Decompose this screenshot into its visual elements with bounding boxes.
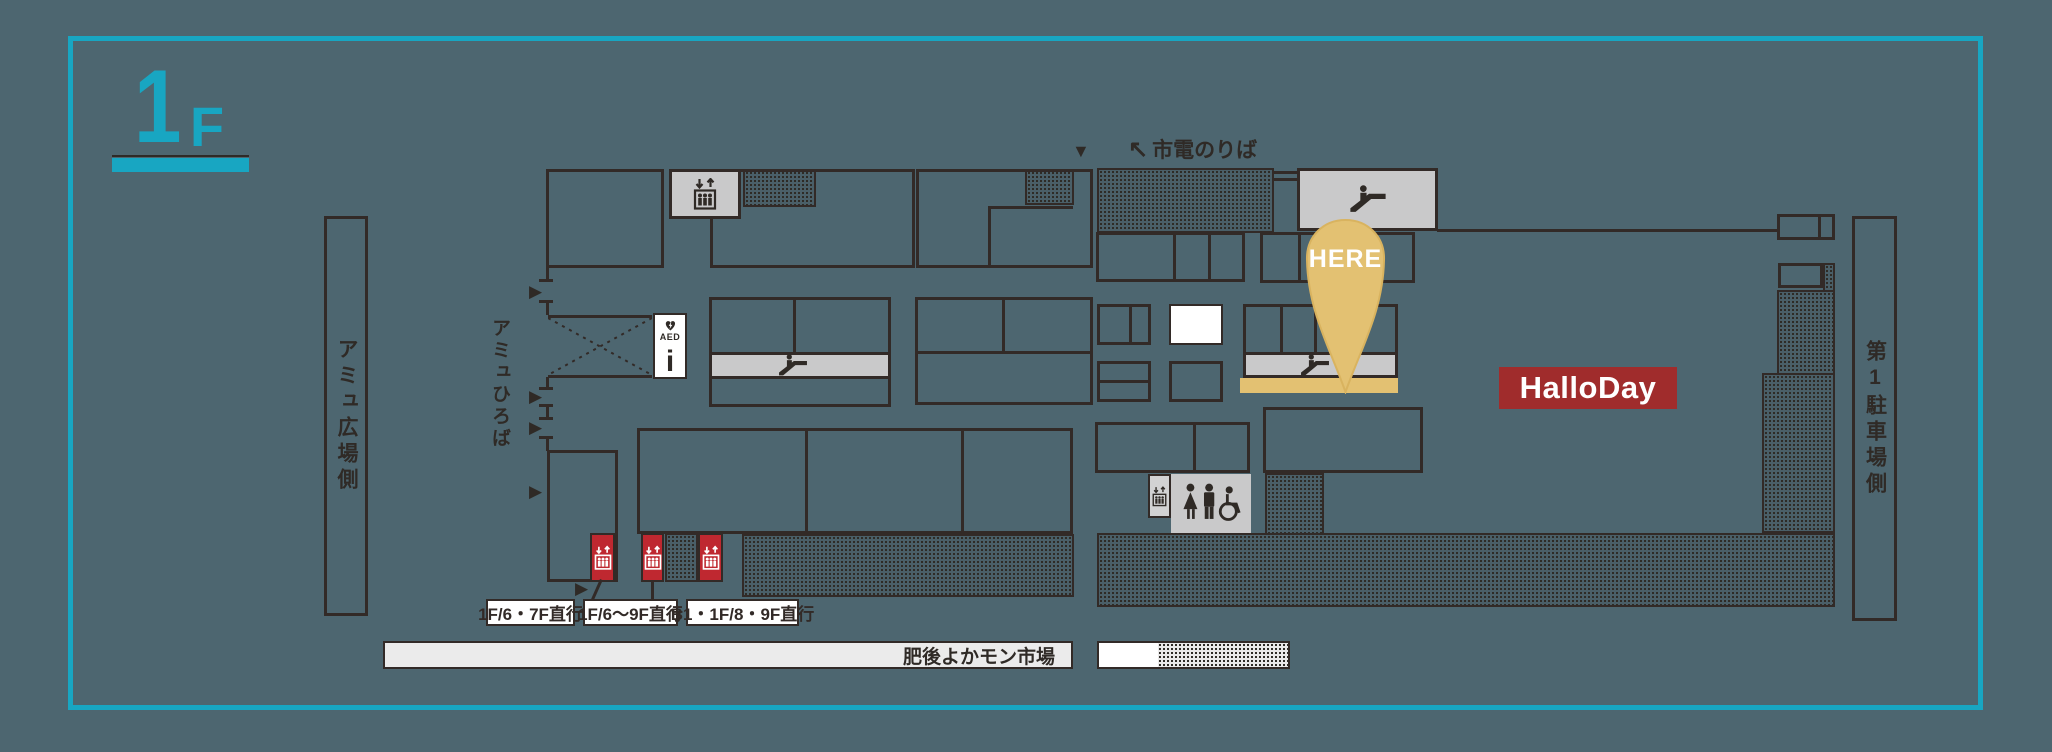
room-divider — [1818, 214, 1821, 240]
room-divider — [1193, 422, 1196, 473]
parking-side-label: 第1駐車場側 — [1860, 340, 1890, 498]
x-room — [548, 315, 652, 378]
map-room — [1096, 232, 1245, 282]
room-divider — [988, 206, 991, 268]
elevator-hall-top — [669, 169, 741, 219]
map-room-white — [1169, 304, 1223, 345]
room-divider — [988, 206, 1073, 209]
escalator-icon — [778, 354, 808, 377]
direct-elevator — [641, 533, 664, 582]
bottom-right-box — [1097, 641, 1290, 669]
hatched-zone — [1823, 263, 1835, 292]
hatched-zone — [1025, 169, 1074, 205]
elevator-hall-small — [1148, 474, 1171, 518]
floor-title: 1 F — [134, 56, 224, 150]
connector-line — [1273, 171, 1297, 174]
map-wall — [1437, 229, 1778, 232]
entrance-arrow-icon: ▶ — [529, 283, 542, 300]
map-room — [1097, 304, 1151, 345]
elevator-note: B1・1F/8・9F直行 — [686, 599, 799, 626]
room-divider — [1097, 380, 1151, 383]
hatched-zone — [665, 533, 698, 582]
room-divider — [1208, 232, 1211, 282]
hatched-zone — [1777, 290, 1835, 375]
map-room — [1778, 263, 1823, 288]
down-arrow-icon: ▼ — [1072, 142, 1090, 160]
elevator-icon — [594, 545, 612, 571]
hatched-zone — [1762, 373, 1835, 533]
map-wall — [546, 301, 549, 315]
room-divider — [1298, 232, 1301, 283]
parking-side-zone: 第1駐車場側 — [1852, 216, 1897, 621]
hatched-zone — [1158, 643, 1288, 667]
tram-arrow-icon: ↖ — [1128, 135, 1148, 164]
plaza-label: アミュひろば — [486, 318, 513, 455]
tram-stop-label: ↖ 市電のりば — [1128, 134, 1257, 164]
floor-number: 1 — [134, 65, 181, 150]
elevator-icon — [702, 545, 720, 571]
plaza-side-label: アミュ広場側 — [331, 338, 361, 494]
map-room — [1169, 361, 1223, 402]
map-room — [1095, 422, 1250, 473]
here-pin-icon — [1303, 216, 1388, 394]
info-icon: i — [666, 347, 674, 377]
direct-elevator — [698, 533, 723, 582]
room-divider — [915, 351, 1093, 354]
room-divider — [805, 428, 808, 534]
hatched-zone — [1097, 533, 1835, 607]
hatched-zone — [743, 169, 816, 207]
elevator-icon — [1152, 486, 1167, 507]
map-room — [1777, 214, 1835, 240]
entrance-arrow-icon: ▶ — [529, 388, 542, 405]
elevator-note: 1F/6〜9F直行 — [583, 599, 678, 626]
map-wall — [546, 438, 549, 451]
room-divider — [961, 428, 964, 534]
plaza-side-zone: アミュ広場側 — [324, 216, 368, 616]
connector-line — [1273, 178, 1297, 181]
entrance-arrow-icon: ▶ — [529, 483, 542, 500]
store-label-halloday: HalloDay — [1499, 367, 1677, 409]
floor-suffix: F — [190, 105, 224, 150]
leader-line — [651, 582, 654, 600]
map-room — [546, 169, 664, 268]
map-room — [637, 428, 1073, 534]
elevator-icon — [693, 178, 717, 210]
here-label: HERE — [1303, 245, 1388, 274]
aed-icon — [659, 320, 682, 331]
hatched-zone — [1097, 168, 1274, 233]
escalator-icon — [1349, 185, 1387, 214]
entrance-arrow-icon: ▶ — [575, 580, 588, 597]
entrance-arrow-icon: ▶ — [529, 419, 542, 436]
map-room — [1263, 407, 1423, 473]
aed-label: AED — [660, 332, 681, 342]
room-divider — [1129, 304, 1132, 345]
room-divider — [1280, 304, 1283, 352]
room-divider — [793, 297, 796, 352]
restroom-zone — [1171, 474, 1251, 533]
room-divider — [1002, 297, 1005, 351]
elevator-note: 1F/6・7F直行 — [486, 599, 575, 626]
market-bar: 肥後よかモン市場 — [383, 641, 1073, 669]
elevator-icon — [644, 545, 662, 571]
aed-info-station: AED i — [653, 313, 687, 379]
direct-elevator — [590, 533, 615, 582]
hatched-zone — [742, 534, 1074, 597]
restroom-icon — [1180, 482, 1242, 525]
floor-underline-dark — [112, 155, 249, 157]
hatched-zone — [1265, 473, 1324, 535]
floor-underline-cyan — [112, 158, 249, 172]
room-divider — [1173, 232, 1176, 282]
floor-map-canvas: 1 F アミュ広場側 第1駐車場側 アミュひろば ▼ ↖ 市電のりば — [0, 0, 2052, 752]
